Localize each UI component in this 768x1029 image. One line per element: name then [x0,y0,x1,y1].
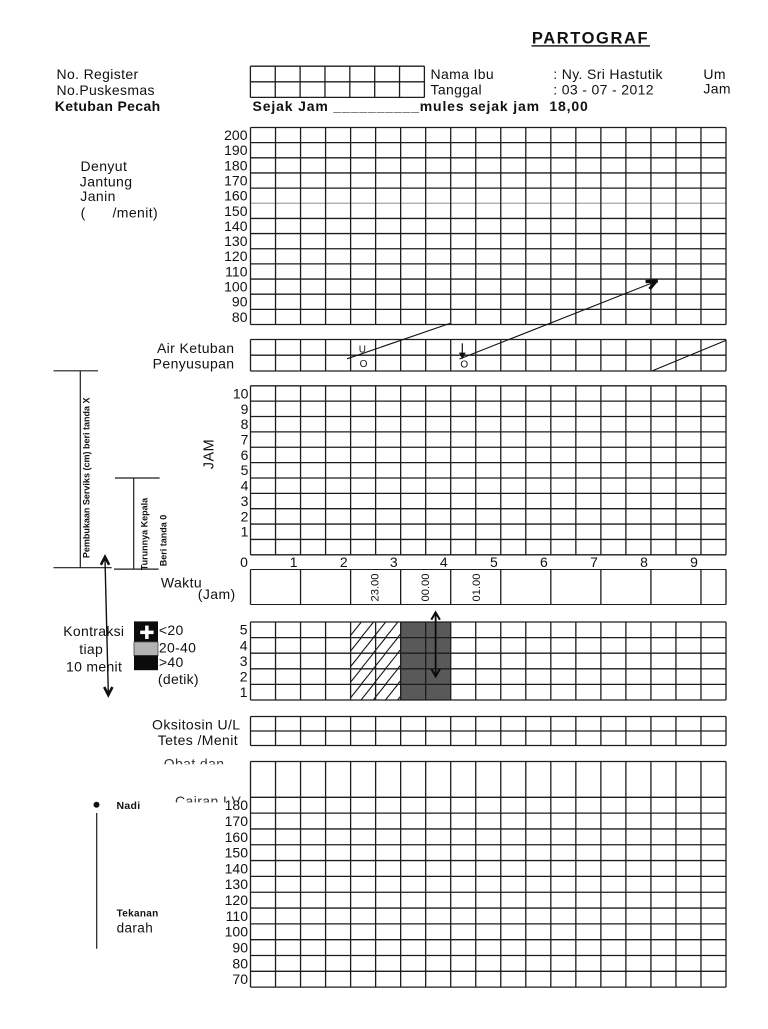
svg-text:Nama Ibu: Nama Ibu [431,66,495,82]
svg-text:(detik): (detik) [158,671,199,687]
svg-text:170: 170 [224,172,248,188]
svg-text:Tekanan: Tekanan [117,909,159,920]
svg-text:: Ny. Sri Hastutik: : Ny. Sri Hastutik [553,66,663,82]
svg-text:00.00: 00.00 [420,574,432,602]
svg-text:2: 2 [241,508,249,524]
svg-text:2: 2 [340,554,348,570]
svg-text:110: 110 [225,263,248,279]
svg-text:6: 6 [540,554,548,570]
svg-text:4: 4 [240,637,248,653]
svg-text:9: 9 [690,554,698,570]
svg-text:160: 160 [224,188,248,204]
svg-text:Denyut: Denyut [81,158,128,174]
svg-text:O: O [460,360,468,371]
svg-text:>40: >40 [159,654,184,670]
svg-text:150: 150 [225,845,249,861]
svg-text:4: 4 [440,554,448,570]
svg-text:Jam: Jam [703,81,731,97]
svg-text:100: 100 [225,924,249,940]
svg-text:: 03 - 07 - 2012: : 03 - 07 - 2012 [553,81,654,97]
svg-text:80: 80 [232,955,248,971]
svg-text:tiap: tiap [79,641,103,657]
svg-text:Pembukaan Serviks (cm) beri ta: Pembukaan Serviks (cm) beri tanda X [81,398,91,559]
svg-text:90: 90 [232,939,248,955]
svg-text:120: 120 [224,248,248,264]
svg-text:80: 80 [232,309,248,325]
svg-text:10 menit: 10 menit [66,658,122,674]
svg-text:Penyusupan: Penyusupan [153,355,235,371]
svg-text:Kontraksi: Kontraksi [63,623,124,639]
svg-text:Jantung: Jantung [80,173,133,189]
svg-text:PARTOGRAF: PARTOGRAF [532,30,649,48]
svg-text:3: 3 [241,493,249,509]
svg-text:3: 3 [240,653,248,669]
svg-text:150: 150 [224,203,248,219]
svg-text:No.Puskesmas: No.Puskesmas [57,82,155,98]
svg-text:Turunnya Kepala: Turunnya Kepala [139,497,149,570]
svg-text:(Jam): (Jam) [198,586,236,602]
svg-text:20-40: 20-40 [159,640,196,656]
svg-text:Beri tanda 0: Beri tanda 0 [159,515,169,567]
svg-text:4: 4 [241,478,249,494]
svg-text:Air Ketuban: Air Ketuban [157,340,235,356]
svg-text:5: 5 [241,462,249,478]
svg-text:darah: darah [117,921,154,936]
svg-text:/menit): /menit) [113,204,159,220]
svg-text:Nadi: Nadi [117,800,141,812]
svg-text:170: 170 [225,813,249,829]
svg-text:10: 10 [233,385,249,401]
svg-text:5: 5 [490,554,498,570]
svg-text:180: 180 [225,797,249,813]
svg-text:Um: Um [703,66,725,82]
svg-text:No. Register: No. Register [57,66,139,82]
svg-text:1: 1 [240,684,248,700]
svg-text:140: 140 [225,860,249,876]
svg-text:Tanggal: Tanggal [431,82,483,98]
svg-text:200: 200 [224,127,248,143]
svg-text:6: 6 [241,447,249,463]
svg-text:Waktu: Waktu [161,575,202,591]
svg-text:Janin: Janin [80,188,115,204]
svg-text:9: 9 [241,401,249,417]
svg-text:Ketuban Pecah: Ketuban Pecah [55,98,161,114]
svg-text:JAM: JAM [202,439,218,470]
svg-text:<20: <20 [159,622,184,638]
svg-text:01.00: 01.00 [471,574,483,602]
svg-text:130: 130 [225,876,249,892]
svg-text:7: 7 [241,431,249,447]
svg-text:1: 1 [290,554,298,570]
svg-text:1: 1 [241,524,249,540]
svg-text:130: 130 [224,233,248,249]
svg-text:2: 2 [240,669,248,685]
svg-text:140: 140 [224,218,248,234]
svg-text:7: 7 [590,554,598,570]
svg-text:Tetes /Menit: Tetes /Menit [158,732,238,748]
svg-text:8: 8 [241,416,249,432]
svg-text:Oksitosin U/L: Oksitosin U/L [152,716,240,732]
svg-text:5: 5 [240,622,248,638]
svg-text:70: 70 [232,971,248,987]
svg-text:110: 110 [226,908,249,924]
svg-text:8: 8 [640,554,648,570]
svg-text:120: 120 [225,892,249,908]
svg-text:O: O [360,359,368,370]
svg-text:23.00: 23.00 [370,574,382,602]
svg-text:Sejak Jam __________mules seja: Sejak Jam __________mules sejak jam 18,0… [253,98,589,114]
svg-text:180: 180 [224,157,248,173]
svg-text:100: 100 [224,279,248,295]
svg-text:90: 90 [232,294,248,310]
svg-text:3: 3 [390,554,398,570]
svg-text:160: 160 [225,829,249,845]
svg-text:190: 190 [224,142,248,158]
svg-text:0: 0 [240,554,248,570]
svg-text:(: ( [81,204,86,220]
